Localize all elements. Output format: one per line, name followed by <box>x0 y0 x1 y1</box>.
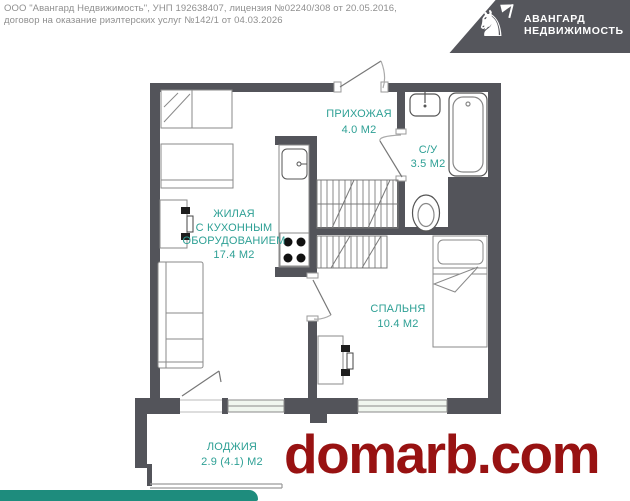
bathroom-area: 3.5 М2 <box>398 157 458 171</box>
room-label-bathroom: С/У 3.5 М2 <box>398 143 458 171</box>
kitchen-sink-icon <box>282 149 307 179</box>
bedroom-name: СПАЛЬНЯ <box>348 302 448 317</box>
bedroom-wardrobe-icon <box>317 236 387 268</box>
loggia-name: ЛОДЖИЯ <box>172 440 292 455</box>
footer-accent-bar <box>0 490 258 501</box>
bedroom-area: 10.4 М2 <box>348 317 448 332</box>
wardrobe-icons <box>317 180 398 268</box>
entrance-door-icon <box>340 61 385 88</box>
loggia-door-icon <box>182 371 221 396</box>
toilet-icon <box>413 195 440 231</box>
room-label-living: ЖИЛАЯ С КУХОННЫМ ОБОРУДОВАНИЕМ 17.4 М2 <box>168 208 300 262</box>
room-label-hallway: ПРИХОЖАЯ 4.0 М2 <box>309 107 409 138</box>
loggia-area: 2.9 (4.1) М2 <box>172 455 292 470</box>
living-name-line-1: ЖИЛАЯ <box>168 208 300 222</box>
living-area: 17.4 М2 <box>168 249 300 263</box>
hallway-area: 4.0 М2 <box>309 123 409 139</box>
watermark: domarb.com <box>284 426 630 482</box>
hallway-wardrobe-icon <box>317 180 398 228</box>
hallway-name: ПРИХОЖАЯ <box>309 107 409 123</box>
real-estate-floorplan-page: ООО "Авангард Недвижимость", УНП 1926384… <box>0 0 630 501</box>
room-label-loggia: ЛОДЖИЯ 2.9 (4.1) М2 <box>172 440 292 469</box>
bathroom-sink-icon <box>410 90 440 116</box>
bedroom-door-icon <box>313 280 331 319</box>
living-name-line-2: С КУХОННЫМ <box>168 222 300 236</box>
loggia-rail <box>150 484 282 488</box>
couch-icon <box>158 262 203 368</box>
bathroom-name: С/У <box>398 143 458 157</box>
sofa-bed-icon <box>161 144 233 188</box>
room-label-bedroom: СПАЛЬНЯ 10.4 М2 <box>348 302 448 332</box>
single-bed-icon <box>161 90 232 128</box>
living-name-line-3: ОБОРУДОВАНИЕМ <box>168 235 300 249</box>
bedroom-desk-icon <box>318 336 343 384</box>
